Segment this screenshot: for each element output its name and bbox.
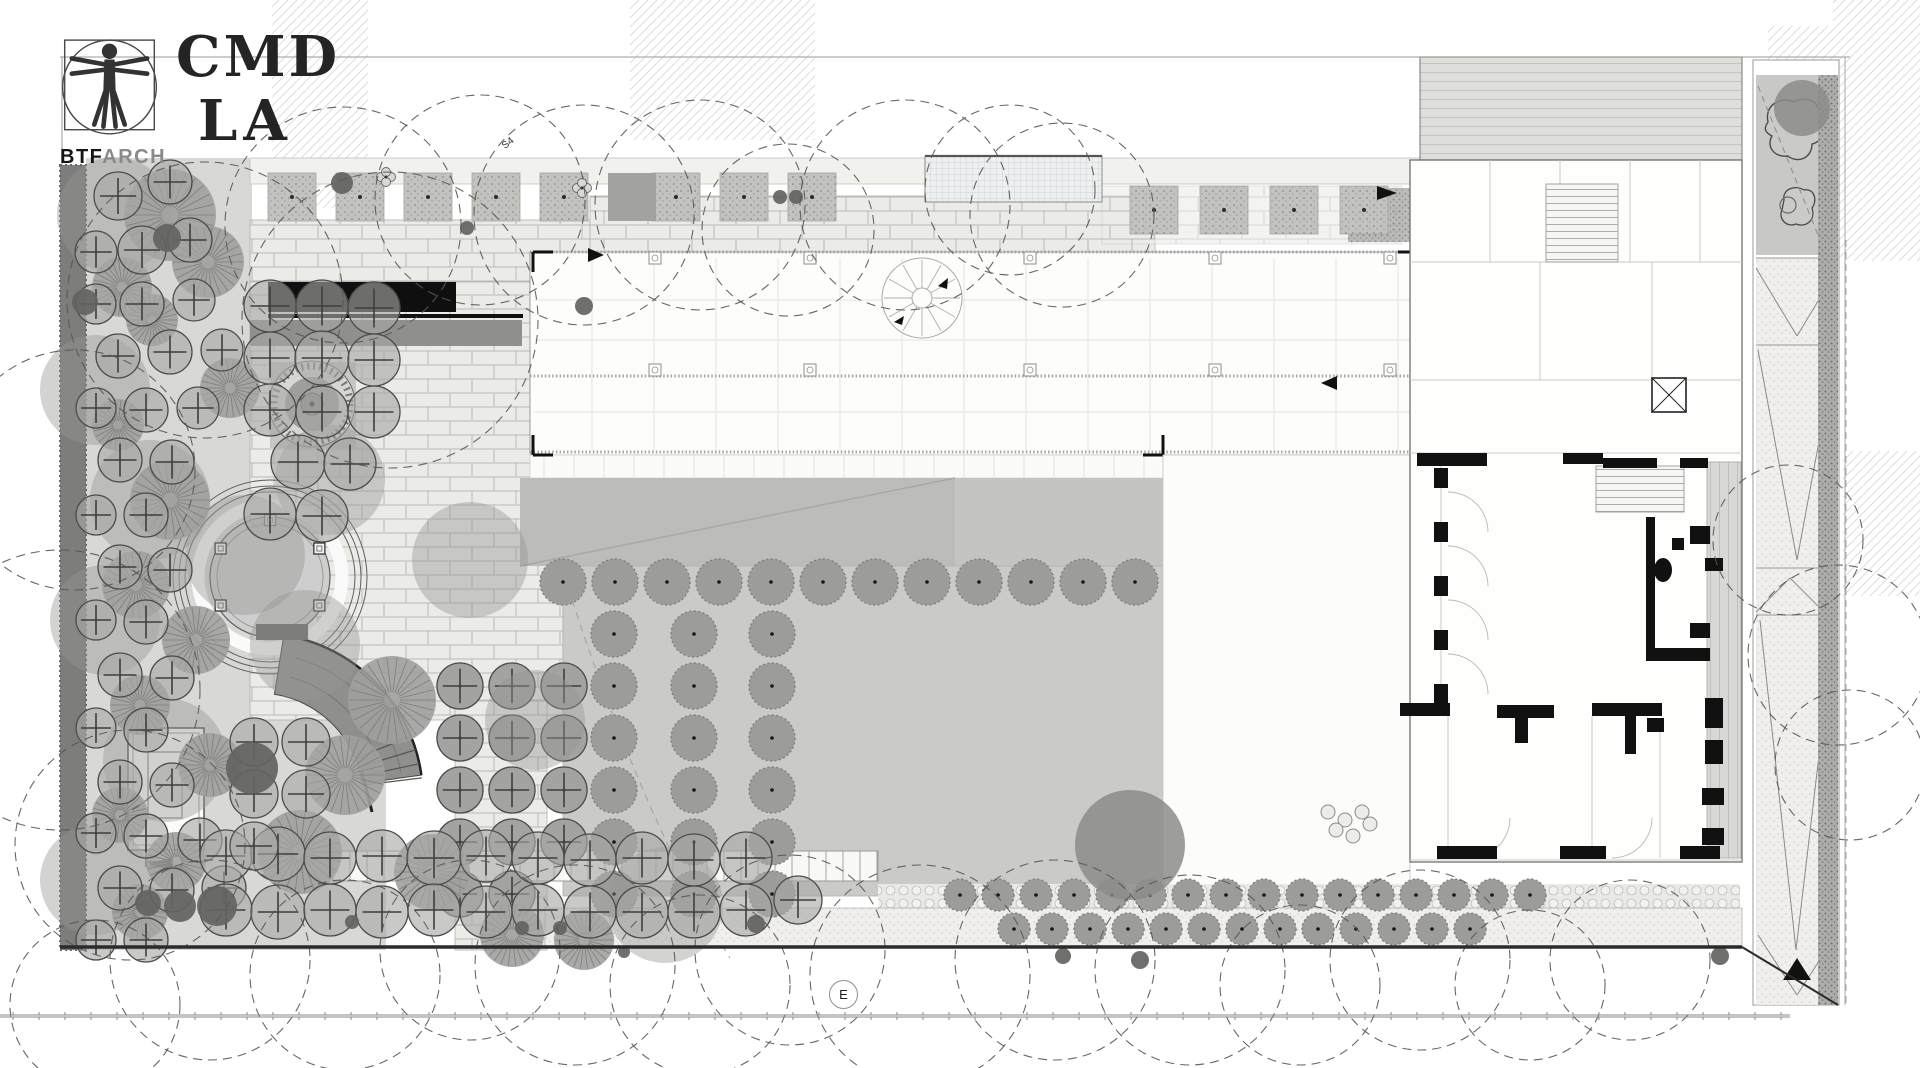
section-marker: E [829, 980, 858, 1009]
vitruvian-man-icon [58, 34, 161, 146]
roof-band [520, 478, 1163, 566]
site-plan-drawing [0, 0, 1920, 1068]
courtyard [1163, 455, 1410, 905]
firm-name-light: ARCH [102, 146, 166, 168]
site-plan-sheet: BTFARCH CMD LA S4 E [0, 0, 1920, 1068]
firm-name: BTFARCH [60, 146, 166, 169]
driveway-ramp [1742, 60, 1846, 1005]
section-marker-letter: E [839, 987, 848, 1002]
right-building [1400, 57, 1742, 862]
title-line-2: LA [198, 88, 293, 154]
firm-name-bold: BTF [60, 146, 102, 168]
